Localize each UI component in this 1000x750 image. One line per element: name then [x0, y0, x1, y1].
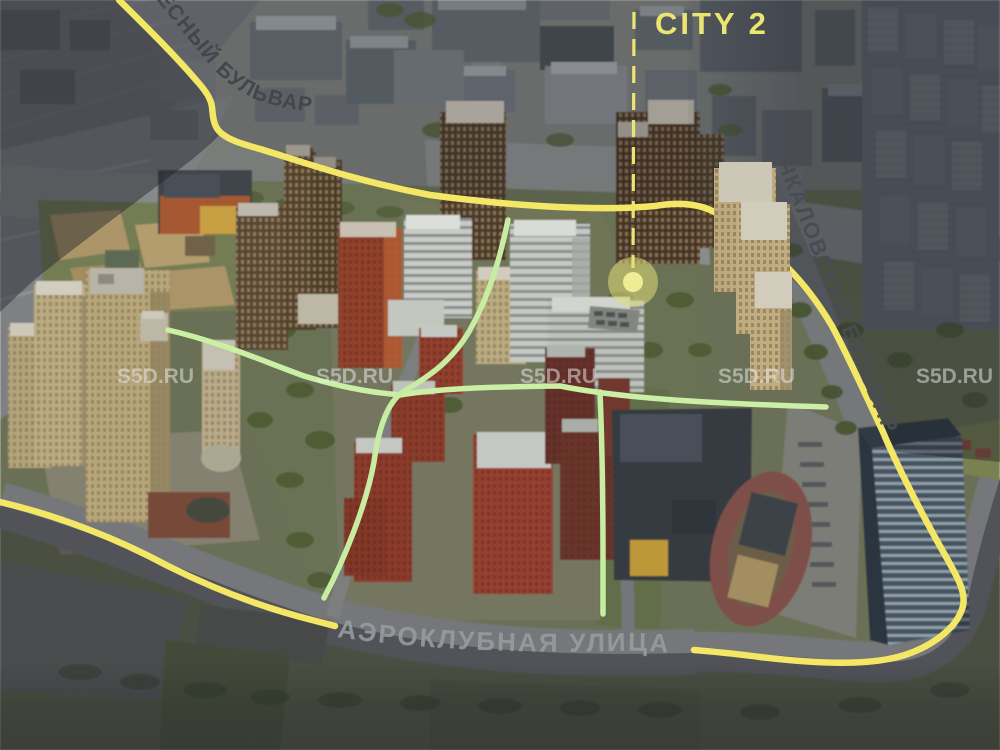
- svg-text:S5D.RU: S5D.RU: [520, 365, 597, 388]
- svg-text:S5D.RU: S5D.RU: [117, 365, 194, 388]
- svg-text:S5D.RU: S5D.RU: [916, 365, 993, 388]
- svg-text:S5D.RU: S5D.RU: [316, 365, 393, 388]
- svg-text:S5D.RU: S5D.RU: [718, 365, 795, 388]
- svg-text:CITY 2: CITY 2: [655, 6, 769, 41]
